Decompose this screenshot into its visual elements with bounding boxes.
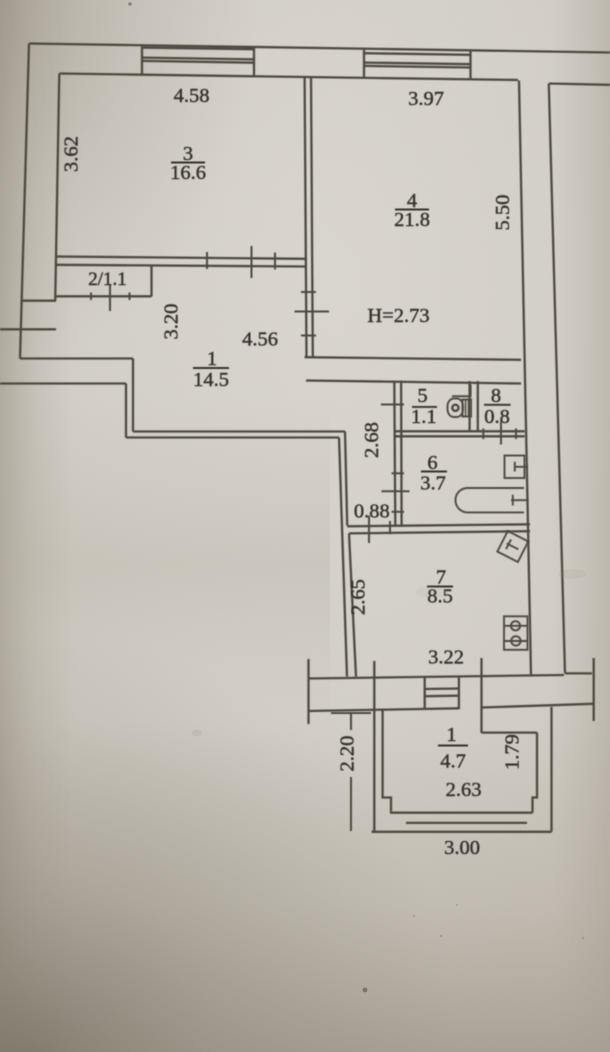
svg-text:3.00: 3.00 xyxy=(444,837,480,859)
svg-text:3.7: 3.7 xyxy=(420,473,446,495)
svg-text:0.8: 0.8 xyxy=(484,406,510,428)
svg-text:3.62: 3.62 xyxy=(61,136,83,172)
svg-text:1.1: 1.1 xyxy=(411,406,437,428)
svg-text:5.50: 5.50 xyxy=(492,195,514,231)
svg-text:21.8: 21.8 xyxy=(394,209,430,231)
svg-text:5: 5 xyxy=(417,385,427,407)
svg-text:0.88: 0.88 xyxy=(354,501,390,523)
svg-text:2.20: 2.20 xyxy=(337,736,359,772)
svg-text:1: 1 xyxy=(207,348,217,370)
svg-text:H=2.73: H=2.73 xyxy=(367,305,429,327)
svg-text:4.58: 4.58 xyxy=(174,85,210,107)
svg-text:2.63: 2.63 xyxy=(446,779,482,801)
svg-text:2/1.1: 2/1.1 xyxy=(88,269,127,290)
svg-text:3.22: 3.22 xyxy=(428,647,464,669)
svg-text:1.79: 1.79 xyxy=(502,734,524,770)
svg-text:3.97: 3.97 xyxy=(408,88,444,110)
svg-text:16.6: 16.6 xyxy=(170,162,206,184)
svg-text:4.56: 4.56 xyxy=(242,329,278,351)
svg-text:14.5: 14.5 xyxy=(193,369,229,391)
svg-text:8: 8 xyxy=(491,385,501,407)
svg-text:1: 1 xyxy=(446,724,456,746)
svg-text:4.7: 4.7 xyxy=(440,751,466,773)
svg-text:2.65: 2.65 xyxy=(348,579,370,615)
svg-text:3.20: 3.20 xyxy=(161,304,183,340)
svg-text:2.68: 2.68 xyxy=(361,422,383,458)
